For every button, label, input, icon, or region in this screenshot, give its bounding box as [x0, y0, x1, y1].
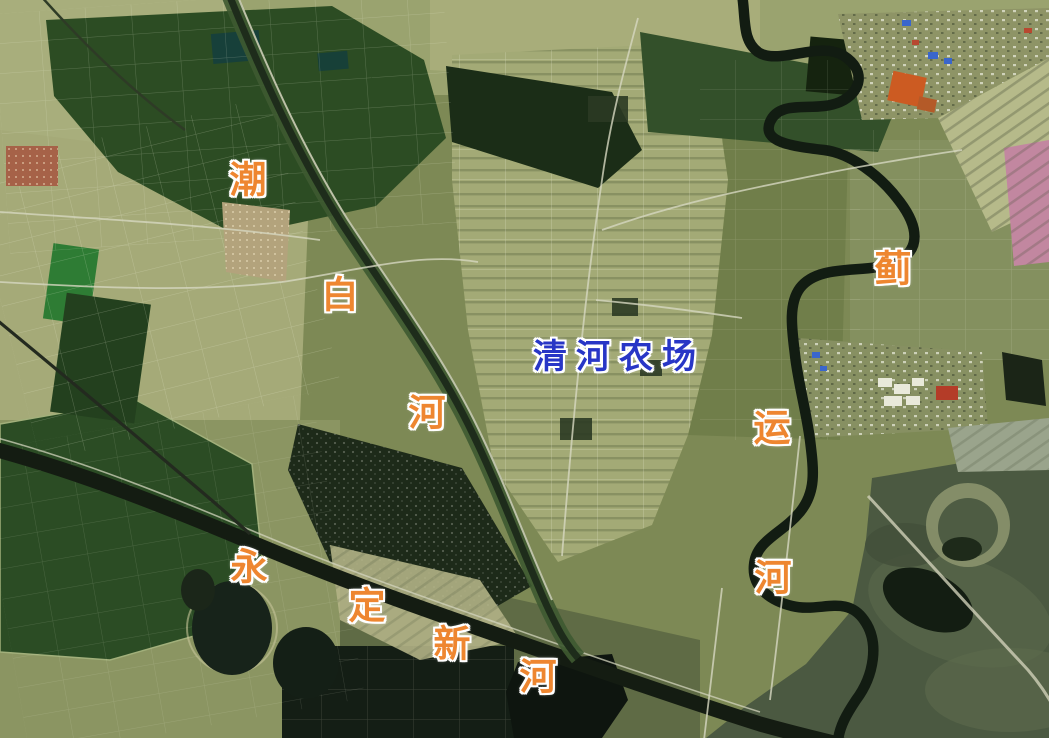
satellite-map[interactable]: 潮 白 河 清河农场 蓟 运 河 永 定 新 河	[0, 0, 1049, 738]
river-label-jiyun-3: 河	[755, 560, 792, 597]
village-speckle	[6, 146, 58, 186]
satellite-basemap	[0, 0, 1049, 738]
tan-village-speckle	[222, 202, 290, 282]
river-label-yongding-2: 定	[349, 588, 386, 625]
left-pond-2	[273, 627, 339, 699]
left-pond-3	[181, 569, 215, 611]
river-label-chaobai-1: 潮	[230, 162, 267, 199]
river-label-jiyun-1: 蓟	[875, 251, 912, 288]
river-label-yongding-4: 河	[520, 659, 557, 696]
right-edge-pond	[1002, 352, 1046, 406]
river-label-jiyun-2: 运	[754, 410, 791, 447]
river-label-chaobai-2: 白	[322, 277, 359, 314]
river-label-chaobai-3: 河	[409, 395, 446, 432]
river-label-yongding-1: 永	[231, 549, 268, 586]
bay-dark-blob	[942, 537, 982, 561]
farm-label-qinghe: 清河农场	[533, 340, 705, 374]
river-label-yongding-3: 新	[434, 626, 471, 663]
midright-town-speckle	[798, 338, 988, 438]
